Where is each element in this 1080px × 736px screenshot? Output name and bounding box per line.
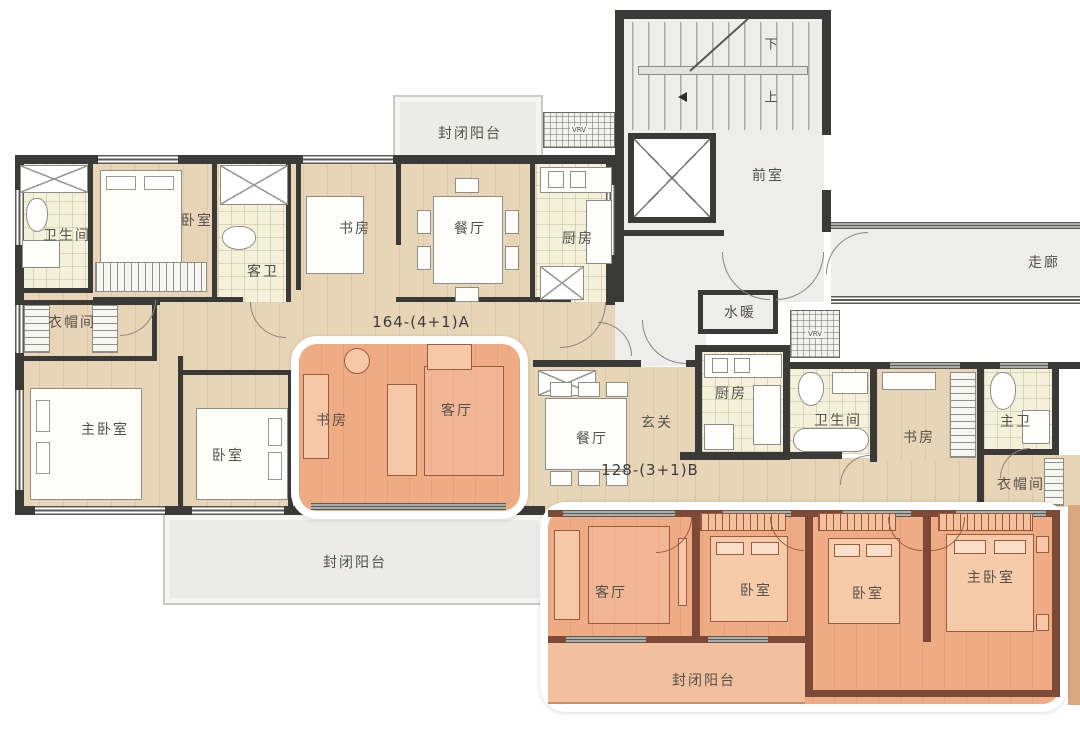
pillow xyxy=(954,540,986,554)
window xyxy=(1000,362,1048,369)
chair xyxy=(417,210,431,234)
window xyxy=(303,155,393,164)
pillow xyxy=(268,452,282,480)
pillow xyxy=(866,544,892,557)
bedroom2-a-label: 卧室 xyxy=(212,445,244,465)
study-b-closet xyxy=(950,372,976,458)
highlight-zone-b: 客厅 卧室 卧室 主卧室 封闭阳台 xyxy=(540,502,1068,712)
balcony-bottom-a-label: 封闭阳台 xyxy=(323,552,387,572)
wall xyxy=(296,160,301,290)
window xyxy=(15,190,24,245)
laundry-counter xyxy=(20,165,88,193)
vrv-top-label: VRV xyxy=(570,126,588,134)
window xyxy=(311,503,506,510)
pillow xyxy=(36,400,50,432)
wardrobe xyxy=(95,262,207,292)
window xyxy=(563,510,675,517)
balcony-b-label: 封闭阳台 xyxy=(672,670,736,690)
floorplan-canvas: VRV 下 上 xyxy=(0,0,1080,736)
window xyxy=(890,362,960,369)
window xyxy=(708,636,768,643)
sink xyxy=(712,358,728,373)
window xyxy=(15,305,24,353)
plumbing-label: 水暖 xyxy=(724,302,756,322)
living-b-label: 客厅 xyxy=(595,582,627,602)
bathtub-b xyxy=(793,428,869,452)
chair xyxy=(578,382,600,397)
toilet xyxy=(990,372,1016,410)
stair-arrow xyxy=(678,92,687,102)
wardrobe xyxy=(818,513,896,531)
cloakroom-b-label: 衣帽间 xyxy=(997,474,1045,494)
study-a-label: 书房 xyxy=(339,218,371,238)
stair-landing xyxy=(638,66,808,75)
cloakroom-a-label: 衣帽间 xyxy=(48,312,96,332)
window xyxy=(15,390,24,490)
bath-a-label: 卫生间 xyxy=(43,225,91,245)
corridor-label: 走廊 xyxy=(1028,252,1060,272)
wall xyxy=(977,362,984,507)
wall xyxy=(178,356,183,512)
wall xyxy=(533,360,641,367)
wall xyxy=(680,452,790,460)
sink xyxy=(548,171,564,188)
wall xyxy=(183,370,291,375)
kitchen-b-label: 厨房 xyxy=(715,383,747,403)
wall xyxy=(530,160,535,302)
toilet xyxy=(798,372,824,406)
armchair xyxy=(427,344,472,370)
window xyxy=(192,506,284,515)
window xyxy=(35,506,165,515)
wall xyxy=(212,160,217,302)
master-bedroom-b-label: 主卧室 xyxy=(967,567,1015,587)
cloakroom-a-shelf xyxy=(24,305,50,353)
study2-label: 书房 xyxy=(316,410,348,430)
entry-b-label: 玄关 xyxy=(641,412,673,432)
wall xyxy=(20,288,93,293)
wall xyxy=(783,345,790,460)
wall xyxy=(615,10,831,19)
chair xyxy=(455,178,479,193)
living-a-label: 客厅 xyxy=(441,400,473,420)
wall xyxy=(790,452,842,459)
chair xyxy=(578,471,600,486)
wall xyxy=(822,10,831,135)
wall xyxy=(1052,510,1060,697)
pillow xyxy=(716,542,744,555)
dining-b-label: 餐厅 xyxy=(576,428,608,448)
bedroom-a-label: 卧室 xyxy=(181,210,213,230)
wall xyxy=(1052,362,1059,455)
sofa xyxy=(387,384,417,476)
wall xyxy=(396,160,401,245)
chair xyxy=(550,471,572,486)
wall xyxy=(805,510,813,697)
kitchen-a-label: 厨房 xyxy=(562,228,594,248)
sink xyxy=(734,358,750,373)
master-bath-b-label: 主卫 xyxy=(1000,411,1032,431)
wall xyxy=(805,690,1060,697)
corridor-window-bottom xyxy=(831,296,1080,304)
pillow xyxy=(834,544,860,557)
guest-bath-a-label: 客卫 xyxy=(247,261,279,281)
master-bedroom-a-label: 主卧室 xyxy=(81,419,129,439)
window xyxy=(566,636,646,643)
bath-b-vanity xyxy=(832,372,868,394)
kitchen-b-counter xyxy=(753,385,781,445)
stair-up-label: 上 xyxy=(764,87,779,106)
wall xyxy=(923,510,931,642)
pillow xyxy=(36,442,50,474)
wall xyxy=(870,362,877,462)
unit-a-code: 164-(4+1)A xyxy=(372,313,470,331)
wall xyxy=(695,345,702,460)
front-room-label: 前室 xyxy=(752,165,784,185)
highlight-zone-a: 书房 客厅 xyxy=(291,336,528,519)
pillow xyxy=(106,176,136,190)
cloakroom-b-shelf xyxy=(1044,458,1064,506)
chair xyxy=(606,382,628,397)
pillow xyxy=(144,176,174,190)
wall xyxy=(624,230,724,236)
unit-b-code: 128-(3+1)B xyxy=(601,461,699,479)
toilet xyxy=(222,226,256,250)
pillow xyxy=(994,540,1026,554)
nightstand xyxy=(1036,536,1049,553)
study-b-label: 书房 xyxy=(903,427,935,447)
chair xyxy=(417,246,431,270)
bedroom1-b-label: 卧室 xyxy=(740,580,772,600)
chair xyxy=(455,287,479,302)
nightstand xyxy=(1036,614,1049,631)
sofa xyxy=(554,530,580,620)
wall xyxy=(615,10,624,302)
wall xyxy=(822,190,831,232)
window xyxy=(98,155,178,164)
pillow xyxy=(268,418,282,446)
dining-a-table xyxy=(433,196,503,284)
kitchen-b-cabinet xyxy=(704,424,734,450)
shower xyxy=(220,165,288,205)
pillow xyxy=(751,542,779,555)
chair xyxy=(505,210,519,234)
elevator xyxy=(628,133,716,223)
wall xyxy=(692,510,700,642)
unit-b-right-cut-floor xyxy=(1068,505,1080,705)
chair xyxy=(550,382,572,397)
bedroom2-b-label: 卧室 xyxy=(852,583,884,603)
rug xyxy=(424,366,504,476)
wall xyxy=(20,356,157,361)
tv-bench xyxy=(678,538,687,606)
kitchen-a-fridge xyxy=(540,266,584,300)
bath-b-label: 卫生间 xyxy=(814,410,862,430)
vrv-side-label: VRV xyxy=(806,330,824,338)
balcony-top-a-label: 封闭阳台 xyxy=(438,123,502,143)
stair-down-label: 下 xyxy=(764,34,779,53)
study-b-shelf xyxy=(882,372,936,390)
chair xyxy=(505,246,519,270)
wall xyxy=(695,345,790,352)
sink xyxy=(570,171,586,188)
side-table xyxy=(344,348,370,374)
dining-a-label: 餐厅 xyxy=(454,218,486,238)
corridor-window-top xyxy=(831,222,1080,229)
